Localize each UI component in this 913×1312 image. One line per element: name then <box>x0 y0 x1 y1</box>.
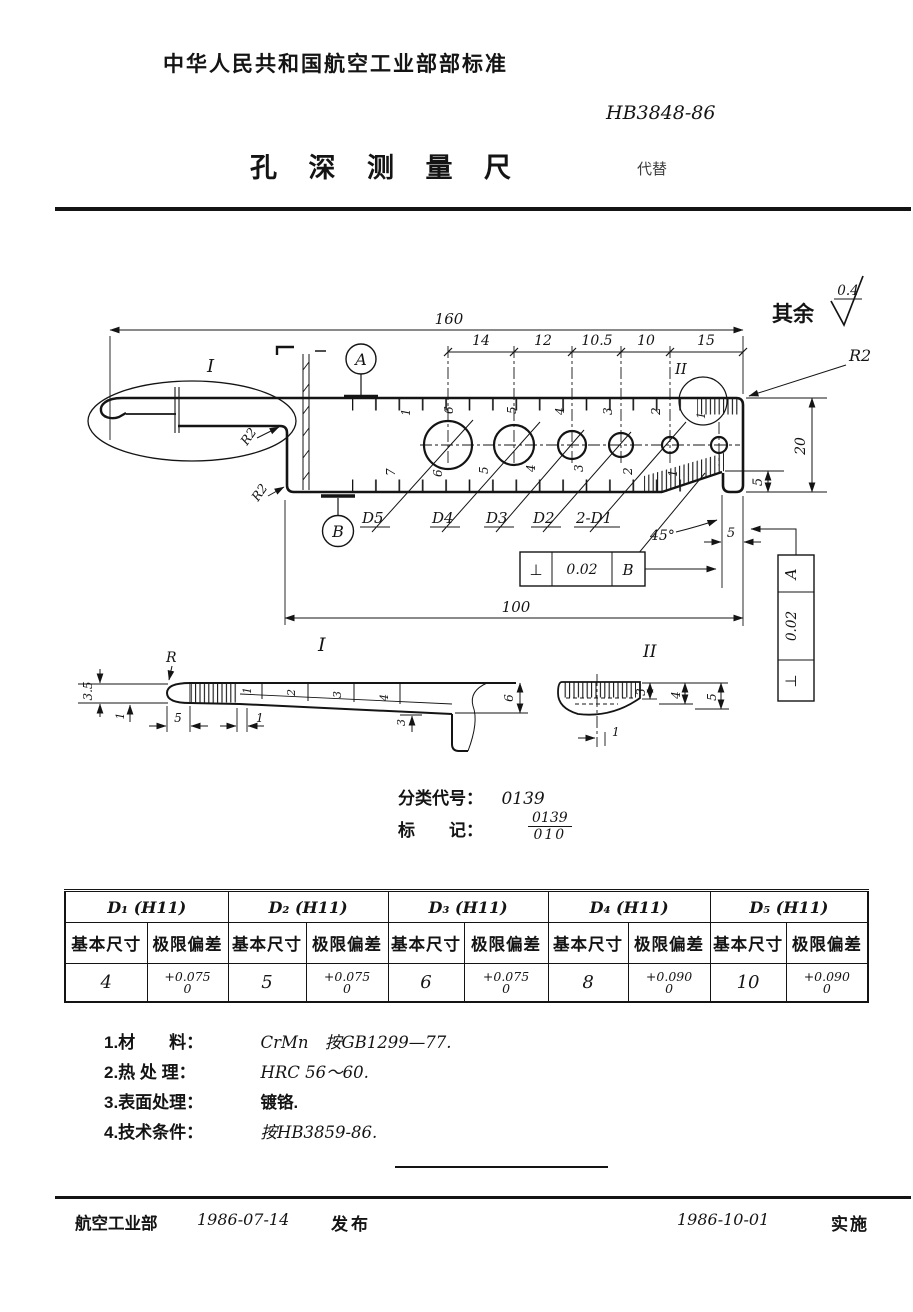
knurl-regions: II 1 <box>644 360 739 494</box>
d5-dev-bot: 0 <box>823 983 831 995</box>
d2-dev-bot: 0 <box>343 983 351 995</box>
note-heat-treatment: 2.热 处 理： HRC 56～60. <box>104 1058 452 1088</box>
technical-drawing: 160 其余 0.4 R2 I <box>0 270 913 775</box>
d1-dev-value: +0.0750 <box>147 964 228 1003</box>
col-d2-basic: 基本尺寸 <box>228 923 306 964</box>
col-d3-dev: 极限偏差 <box>464 923 548 964</box>
dim-100-group: 100 <box>285 500 743 625</box>
dim-12: 12 <box>534 333 552 349</box>
datum-b-letter: B <box>331 522 344 541</box>
r2-blade-label: R2 <box>237 425 260 449</box>
detail2-dim-3: 3 <box>634 688 648 696</box>
detail1-dim-tip-1: 1 <box>114 713 127 720</box>
surface-finish-note: 其余 0.4 <box>772 276 863 326</box>
header-divider <box>55 207 911 211</box>
dim-10: 10 <box>637 333 655 349</box>
dim-10-5: 10.5 <box>581 333 612 349</box>
col-d5: D₅ (H11) <box>710 891 868 923</box>
d4-dev-bot: 0 <box>665 983 673 995</box>
footer-implement-label: 实施 <box>831 1210 869 1235</box>
table-group-header-row: D₁ (H11) D₂ (H11) D₃ (H11) D₄ (H11) D₅ (… <box>65 891 868 923</box>
footer-issuer: 航空工业部 <box>75 1210 158 1234</box>
label-d5: D5 <box>361 509 384 527</box>
col-d4-dev: 极限偏差 <box>628 923 710 964</box>
standard-org-title: 中华人民共和国航空工业部部标准 <box>163 48 508 78</box>
fcf-perpendicular-a: A 0.02 ⊥ <box>751 529 814 701</box>
detail2-dim-1: 1 <box>612 725 620 739</box>
footer-divider <box>55 1196 911 1199</box>
dim-15: 15 <box>697 333 715 349</box>
hole-labels: D5 D4 D3 D2 2-D1 <box>360 420 686 532</box>
datum-a-letter: A <box>353 350 367 369</box>
col-d3: D₃ (H11) <box>388 891 548 923</box>
footer-effective-date: 1986-10-01 <box>677 1210 769 1229</box>
dim-14: 14 <box>472 333 490 349</box>
classification-code: 0139 <box>501 789 544 809</box>
scale-bot-2: 2 <box>621 467 635 476</box>
dim-160-group: 160 <box>110 310 743 440</box>
note-1-value: CrMn 按GB1299—77. <box>260 1033 451 1052</box>
angle-45-label: 45° <box>649 528 675 544</box>
datum-b-symbol: B <box>321 496 355 547</box>
detail1-label: I <box>317 634 326 656</box>
table-data-row: 4 +0.0750 5 +0.0750 6 +0.0750 8 +0.0900 … <box>65 964 868 1003</box>
technical-notes: 1.材 料： CrMn 按GB1299—77. 2.热 处 理： HRC 56～… <box>104 1028 452 1148</box>
note-material: 1.材 料： CrMn 按GB1299—77. <box>104 1028 452 1058</box>
note-4-label: 4.技术条件： <box>104 1118 256 1143</box>
d3-basic-value: 6 <box>388 964 464 1003</box>
scale-top-3: 3 <box>601 407 615 415</box>
scale-circle-1: 1 <box>695 412 708 419</box>
replaces-note: 代替 <box>637 158 667 179</box>
detail1-dim-5: 5 <box>174 711 182 725</box>
r2-corner-label: R2 <box>248 481 271 505</box>
view1-marker: I <box>206 356 215 377</box>
detail2-dim-5: 5 <box>705 693 719 701</box>
col-d1-dev: 极限偏差 <box>147 923 228 964</box>
d2-basic-value: 5 <box>228 964 306 1003</box>
mark-numerator: 0139 <box>528 810 572 827</box>
dim-5-foot: 5 <box>727 526 735 541</box>
footer-issue-date: 1986-07-14 <box>197 1210 289 1229</box>
measuring-holes <box>420 421 740 469</box>
detail1-dim-pitch-1: 1 <box>256 711 264 725</box>
footer-publish-label: 发布 <box>331 1210 371 1235</box>
surface-roughness-value: 0.4 <box>837 283 858 299</box>
note-3-label: 3.表面处理： <box>104 1088 256 1113</box>
standard-number: HB3848-86 <box>606 102 715 124</box>
col-d5-dev: 极限偏差 <box>786 923 868 964</box>
detail-view-1: I 3.5 1 1 2 3 4 3 <box>78 634 528 751</box>
view2-marker: II <box>674 360 688 378</box>
col-d1: D₁ (H11) <box>65 891 228 923</box>
datum-a-symbol: A <box>344 344 378 397</box>
note-4-value: 按HB3859-86. <box>260 1123 377 1142</box>
col-d3-basic: 基本尺寸 <box>388 923 464 964</box>
radius-top-right: R2 <box>749 346 871 396</box>
dim-5-step: 5 <box>751 478 766 486</box>
detail2-label: II <box>642 642 657 662</box>
detail1-dim-6: 6 <box>502 694 516 702</box>
detail1-scale-2: 2 <box>285 689 298 697</box>
detail1-scale-4: 4 <box>378 694 391 702</box>
document-title: 孔 深 测 量 尺 <box>250 146 523 185</box>
mark-label: 标 记： <box>398 816 483 841</box>
label-d2: D2 <box>532 509 555 527</box>
scale-top-5: 5 <box>505 406 519 414</box>
d2-dev-value: +0.0750 <box>306 964 388 1003</box>
surface-note-text: 其余 <box>772 302 815 326</box>
mark-fraction: 0139 010 <box>528 810 572 843</box>
scale-top-6: 6 <box>442 406 456 414</box>
detail1-dim-3-5: 3.5 <box>81 681 95 700</box>
fcf-perpendicular-b: ⊥ 0.02 B <box>520 552 716 586</box>
label-d3: D3 <box>485 509 508 527</box>
detail1-boundary: I <box>88 356 296 461</box>
fcf-b-tolerance: 0.02 <box>566 562 597 578</box>
fcf-a-datum: A <box>782 568 800 581</box>
notes-end-rule <box>395 1166 608 1168</box>
d1-dev-bot: 0 <box>184 983 192 995</box>
d3-dev-bot: 0 <box>502 983 510 995</box>
detail1-scale-3: 3 <box>331 691 344 698</box>
classification-block: 分类代号： 0139 标 记： 0139 010 <box>398 784 545 841</box>
fcf-b-symbol: ⊥ <box>529 562 542 579</box>
col-d5-basic: 基本尺寸 <box>710 923 786 964</box>
tolerance-table: D₁ (H11) D₂ (H11) D₃ (H11) D₄ (H11) D₅ (… <box>64 889 869 1003</box>
dim-20: 20 <box>793 437 809 456</box>
d3-dev-value: +0.0750 <box>464 964 548 1003</box>
dim-100: 100 <box>502 598 531 616</box>
scale-bot-5: 5 <box>477 466 491 474</box>
blade-radius-labels: R2 R2 <box>237 425 284 505</box>
table-sub-header-row: 基本尺寸 极限偏差 基本尺寸 极限偏差 基本尺寸 极限偏差 基本尺寸 极限偏差 … <box>65 923 868 964</box>
r2-top-label: R2 <box>848 346 871 365</box>
scale-top-1: 1 <box>399 408 413 416</box>
detail2-dim-4: 4 <box>669 691 683 700</box>
label-2d1: 2-D1 <box>575 509 612 527</box>
standard-document-page: 中华人民共和国航空工业部部标准 HB3848-86 孔 深 测 量 尺 代替 1… <box>0 0 913 1312</box>
note-2-label: 2.热 处 理： <box>104 1058 256 1083</box>
scale-top-2: 2 <box>649 407 663 416</box>
mark-denominator: 010 <box>528 827 572 843</box>
note-3-value: 镀铬. <box>260 1094 298 1112</box>
col-d4-basic: 基本尺寸 <box>548 923 628 964</box>
note-surface-treatment: 3.表面处理： 镀铬. <box>104 1088 452 1118</box>
scale-bot-4: 4 <box>524 464 538 473</box>
note-1-label: 1.材 料： <box>104 1028 256 1053</box>
scale-bot-3: 3 <box>572 464 586 472</box>
col-d1-basic: 基本尺寸 <box>65 923 147 964</box>
d4-dev-value: +0.0900 <box>628 964 710 1003</box>
section-line <box>277 347 326 490</box>
fcf-a-symbol: ⊥ <box>783 674 800 687</box>
col-d2: D₂ (H11) <box>228 891 388 923</box>
detail1-radius-label: R <box>165 650 177 666</box>
scale-top-4: 4 <box>553 407 567 416</box>
col-d4: D₄ (H11) <box>548 891 710 923</box>
detail1-scale-1: 1 <box>241 687 254 694</box>
d5-dev-value: +0.0900 <box>786 964 868 1003</box>
classification-label: 分类代号： <box>398 789 483 808</box>
note-2-value: HRC 56～60. <box>260 1063 368 1082</box>
scale-bot-7: 7 <box>384 468 398 476</box>
d4-basic-value: 8 <box>548 964 628 1003</box>
label-d4: D4 <box>431 509 454 527</box>
d5-basic-value: 10 <box>710 964 786 1003</box>
detail1-dim-3: 3 <box>395 719 408 726</box>
note-tech-conditions: 4.技术条件： 按HB3859-86. <box>104 1118 452 1148</box>
fcf-b-datum: B <box>621 561 633 579</box>
d1-basic-value: 4 <box>65 964 147 1003</box>
detail-view-2: II 1 3 4 5 <box>558 642 729 747</box>
scale-bot-6: 6 <box>431 469 445 477</box>
fcf-a-tolerance: 0.02 <box>784 611 800 641</box>
col-d2-dev: 极限偏差 <box>306 923 388 964</box>
dim-160: 160 <box>435 310 464 328</box>
